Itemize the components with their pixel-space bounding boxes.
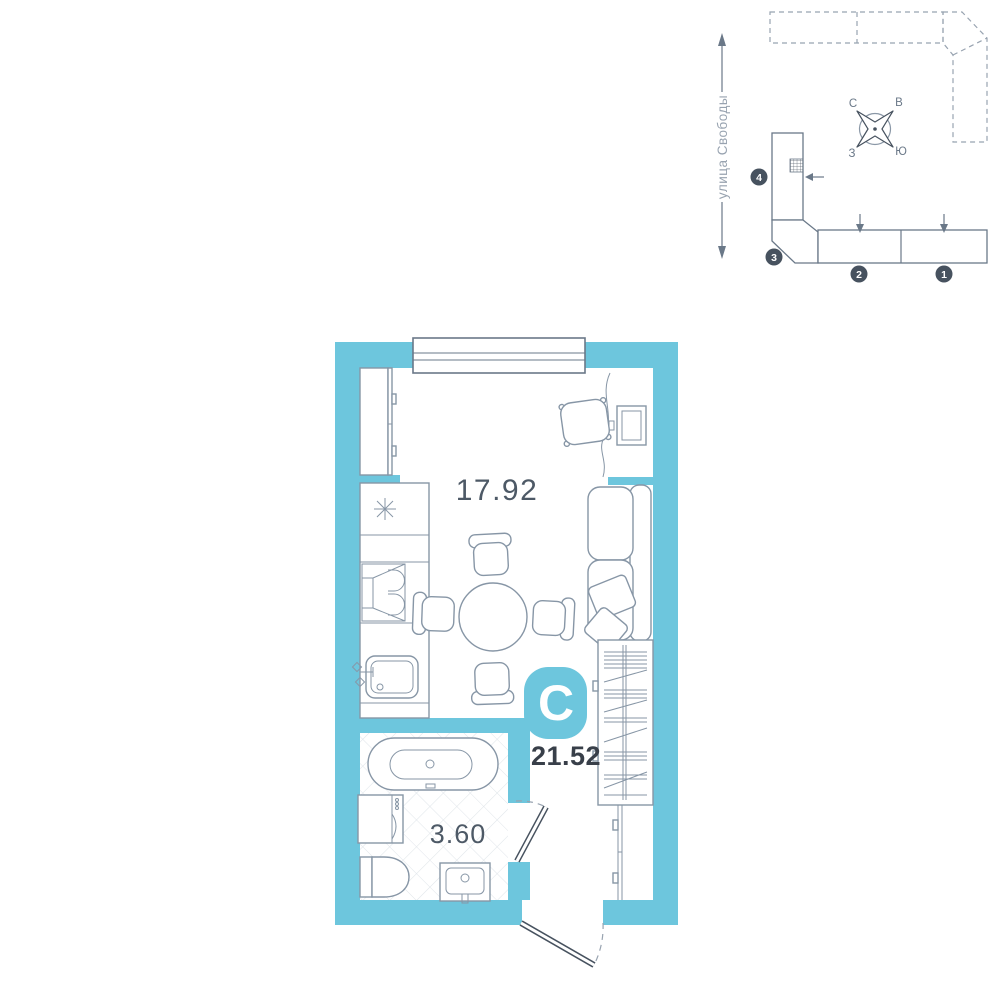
compass-east: В (895, 97, 903, 109)
wardrobe (593, 640, 653, 805)
dashed-mitre (953, 38, 987, 55)
wall-bottom-left (335, 900, 522, 925)
dining-chair-right (532, 596, 575, 640)
fridge-symbol (374, 498, 396, 520)
building-sections-1-2 (818, 230, 987, 263)
wall-bathroom-top (360, 718, 530, 733)
section-badge-3: 3 (766, 249, 783, 266)
floorplan-page: улица Свободы (0, 0, 1000, 1000)
washbasin (440, 863, 490, 903)
type-badge-letter: С (538, 675, 574, 731)
compass-rose-icon: С В З Ю (849, 97, 908, 160)
bathtub (368, 738, 498, 790)
desk-chair (559, 397, 612, 446)
compass-west: З (849, 148, 856, 160)
building-section-4 (772, 133, 803, 220)
wall-bottom-right (603, 900, 678, 925)
bathroom-door (516, 801, 546, 861)
section-badge-4: 4 (751, 169, 768, 186)
dining-chair-top (469, 533, 513, 576)
bathroom-area-label: 3.60 (430, 819, 487, 849)
toilet (360, 857, 409, 897)
dashed-building-corner (943, 12, 987, 142)
apartment-location-marker (790, 159, 803, 172)
washing-machine (358, 795, 403, 843)
marker-arrow-left-icon (805, 173, 813, 181)
apartment-plan: С 17.92 3.60 21.52 (335, 338, 678, 965)
wall-bathroom-right-upper (508, 733, 530, 803)
svg-text:4: 4 (756, 172, 762, 184)
door-swing-arc (595, 923, 603, 963)
entry-door (521, 923, 603, 965)
sofa-seat-top (588, 487, 633, 560)
monitor-icon (609, 406, 646, 445)
street-label-group: улица Свободы (715, 33, 730, 259)
window (413, 338, 585, 373)
living-area-label: 17.92 (456, 474, 539, 507)
street-label: улица Свободы (715, 95, 730, 199)
svg-text:2: 2 (856, 269, 862, 281)
dining-table (459, 583, 527, 651)
wall-kitchen-stub (360, 475, 400, 483)
street-arrow-down-icon (718, 246, 726, 259)
svg-text:1: 1 (941, 269, 947, 281)
site-plan: улица Свободы (715, 12, 987, 283)
wall-desk-stub (608, 477, 653, 485)
building-outline (772, 133, 987, 263)
section-badge-1: 1 (936, 266, 953, 283)
compass-north: С (849, 98, 857, 110)
cabinet (360, 368, 396, 475)
wall-right (653, 342, 678, 925)
total-area-label: 21.52 (531, 741, 601, 771)
wall-bathroom-right-lower (508, 862, 530, 900)
floorplan-svg: улица Свободы (0, 0, 1000, 1000)
section-badge-2: 2 (851, 266, 868, 283)
wall-left (335, 342, 360, 925)
dining-chair-bottom (470, 662, 513, 704)
hallway-closet (613, 805, 622, 900)
dining-chair-left (412, 592, 454, 635)
svg-text:3: 3 (771, 252, 777, 264)
compass-south: Ю (895, 146, 907, 158)
apartment-type-badge: С (524, 667, 587, 739)
sofa (583, 485, 651, 652)
street-arrow-up-icon (718, 33, 726, 46)
